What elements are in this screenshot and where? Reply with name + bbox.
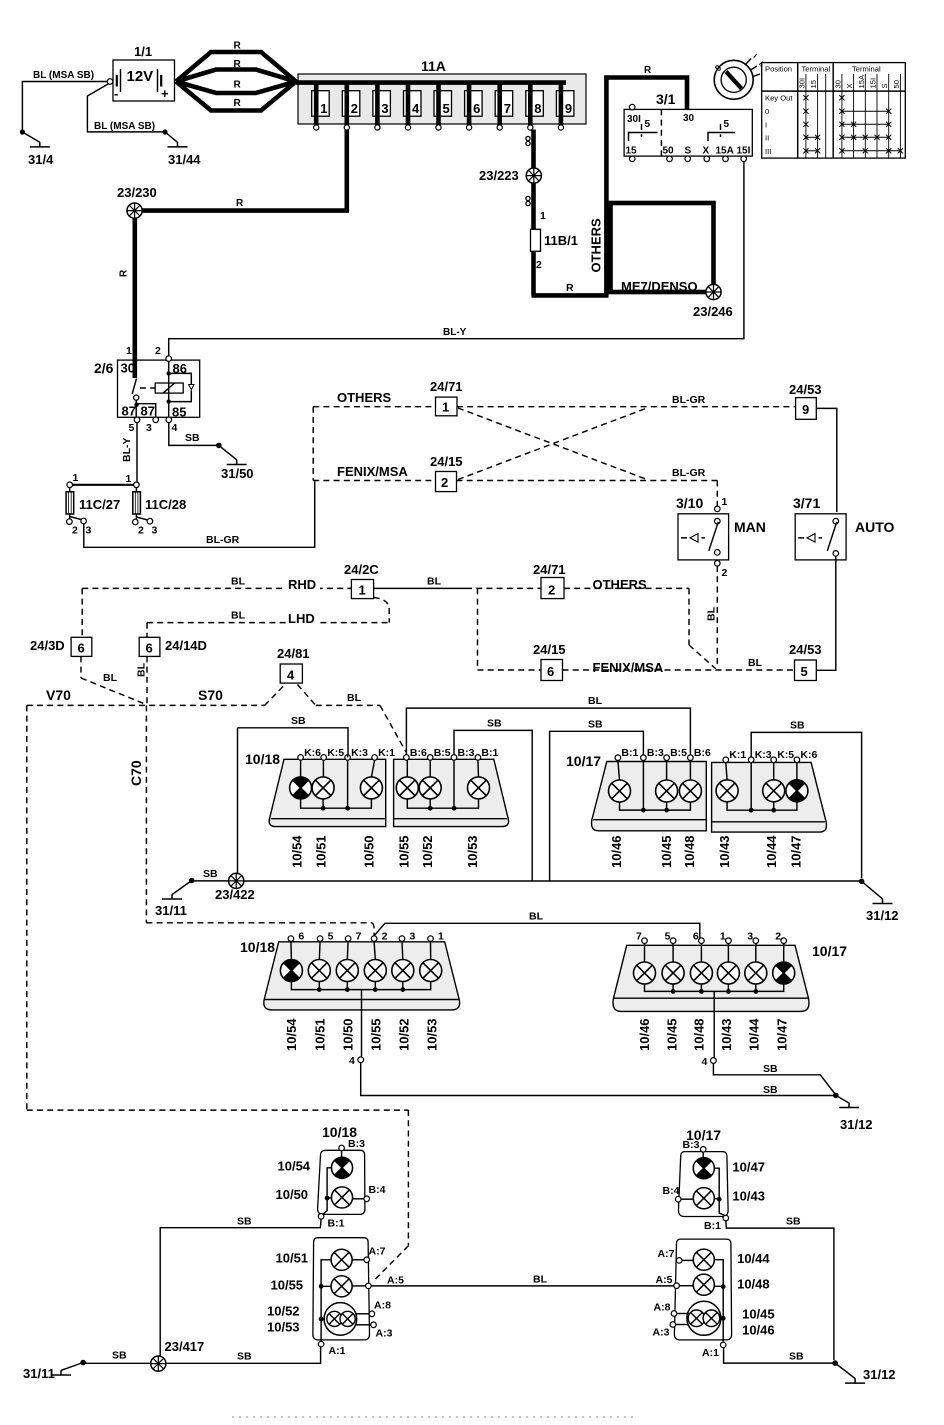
svg-text:10/48: 10/48 bbox=[682, 835, 697, 868]
svg-text:30I: 30I bbox=[627, 114, 641, 125]
svg-text:1: 1 bbox=[320, 101, 327, 116]
svg-text:10/51: 10/51 bbox=[313, 835, 328, 868]
svg-text:ME7/DENSO: ME7/DENSO bbox=[621, 279, 698, 294]
svg-text:24/15: 24/15 bbox=[430, 454, 463, 469]
svg-text:10/47: 10/47 bbox=[775, 1018, 790, 1051]
svg-text:S: S bbox=[685, 146, 692, 157]
svg-text:III: III bbox=[765, 147, 771, 156]
svg-text:10/46: 10/46 bbox=[637, 1018, 652, 1051]
svg-text:C70: C70 bbox=[128, 760, 144, 786]
svg-text:10/48: 10/48 bbox=[737, 1277, 770, 1292]
svg-text:10/45: 10/45 bbox=[665, 1018, 680, 1051]
svg-text:6: 6 bbox=[473, 101, 480, 116]
svg-text:23/417: 23/417 bbox=[165, 1339, 205, 1354]
svg-text:1: 1 bbox=[720, 931, 726, 943]
svg-text:10/44: 10/44 bbox=[747, 1018, 762, 1051]
svg-text:SB: SB bbox=[237, 1216, 252, 1228]
svg-text:MAN: MAN bbox=[734, 519, 766, 535]
svg-text:6: 6 bbox=[547, 664, 554, 679]
svg-text:10/50: 10/50 bbox=[362, 835, 377, 868]
svg-text:SB: SB bbox=[763, 1084, 778, 1096]
svg-text:SB: SB bbox=[291, 715, 306, 727]
svg-text:10/18: 10/18 bbox=[240, 939, 275, 955]
svg-text:SB: SB bbox=[789, 1351, 804, 1363]
svg-text:R: R bbox=[644, 65, 652, 76]
svg-text:K:6: K:6 bbox=[304, 747, 321, 759]
svg-text:7: 7 bbox=[504, 101, 511, 116]
svg-text:6: 6 bbox=[298, 931, 304, 943]
svg-text:4: 4 bbox=[172, 422, 178, 434]
svg-text:11B/1: 11B/1 bbox=[544, 233, 578, 248]
svg-text:10/43: 10/43 bbox=[719, 1018, 734, 1051]
svg-text:15: 15 bbox=[809, 80, 818, 88]
svg-text:A:1: A:1 bbox=[702, 1347, 719, 1359]
svg-text:5: 5 bbox=[801, 664, 808, 679]
svg-text:15I: 15I bbox=[737, 146, 751, 157]
svg-text:A:7: A:7 bbox=[369, 1246, 386, 1258]
svg-text:11C/28: 11C/28 bbox=[145, 497, 186, 512]
svg-text:1: 1 bbox=[540, 210, 546, 222]
svg-text:10/47: 10/47 bbox=[789, 835, 804, 868]
svg-text:BL: BL bbox=[231, 610, 246, 622]
svg-text:10/17: 10/17 bbox=[812, 943, 847, 959]
svg-text:31/11: 31/11 bbox=[23, 1366, 55, 1381]
svg-text:2: 2 bbox=[351, 101, 358, 116]
svg-text:9: 9 bbox=[802, 402, 809, 417]
svg-text:R: R bbox=[234, 80, 242, 91]
svg-text:R: R bbox=[234, 98, 242, 109]
svg-text:X: X bbox=[703, 146, 710, 157]
svg-text:OTHERS: OTHERS bbox=[337, 390, 392, 405]
svg-text:1: 1 bbox=[126, 345, 132, 357]
svg-text:+: + bbox=[161, 86, 169, 101]
svg-text:4: 4 bbox=[412, 101, 420, 116]
svg-text:2: 2 bbox=[382, 931, 388, 943]
svg-text:2: 2 bbox=[138, 525, 144, 537]
svg-text:10/53: 10/53 bbox=[267, 1320, 300, 1335]
svg-text:4: 4 bbox=[349, 1055, 355, 1067]
svg-text:9: 9 bbox=[565, 101, 572, 116]
svg-text:10/55: 10/55 bbox=[271, 1278, 304, 1293]
svg-text:2: 2 bbox=[155, 345, 161, 357]
svg-text:B:3: B:3 bbox=[683, 1139, 700, 1151]
svg-text:K:1: K:1 bbox=[729, 749, 746, 761]
svg-text:5: 5 bbox=[129, 422, 135, 434]
svg-text:Key Out: Key Out bbox=[765, 94, 793, 103]
svg-text:5: 5 bbox=[665, 931, 671, 943]
svg-text:FENIX/MSA: FENIX/MSA bbox=[593, 660, 664, 675]
svg-text:85: 85 bbox=[172, 405, 186, 420]
svg-text:BL-GR: BL-GR bbox=[206, 534, 240, 546]
svg-text:24/2C: 24/2C bbox=[344, 562, 379, 577]
svg-text:AUTO: AUTO bbox=[855, 519, 895, 535]
svg-text:10/43: 10/43 bbox=[717, 835, 732, 868]
svg-text:2: 2 bbox=[775, 931, 781, 943]
svg-text:SB: SB bbox=[487, 718, 502, 730]
svg-text:B:3: B:3 bbox=[348, 1138, 365, 1150]
svg-text:87: 87 bbox=[122, 404, 136, 419]
svg-text:10/54: 10/54 bbox=[278, 1159, 311, 1174]
svg-text:K:3: K:3 bbox=[755, 749, 772, 761]
svg-text:10/47: 10/47 bbox=[732, 1160, 765, 1175]
svg-text:3: 3 bbox=[410, 931, 416, 943]
svg-text:2: 2 bbox=[72, 525, 78, 537]
svg-text:50: 50 bbox=[663, 146, 675, 157]
svg-text:10/52: 10/52 bbox=[420, 835, 435, 868]
svg-text:8: 8 bbox=[534, 101, 541, 116]
svg-text:7: 7 bbox=[636, 931, 642, 943]
svg-text:BL: BL bbox=[533, 1274, 548, 1286]
svg-text:31/11: 31/11 bbox=[155, 903, 187, 918]
svg-text:BL: BL bbox=[347, 692, 362, 704]
svg-text:BL-Y: BL-Y bbox=[443, 327, 467, 338]
svg-text:BL (MSA SB): BL (MSA SB) bbox=[94, 121, 155, 132]
svg-text:BL: BL bbox=[748, 657, 763, 669]
svg-text:23/223: 23/223 bbox=[479, 168, 519, 183]
svg-text:10/43: 10/43 bbox=[732, 1189, 765, 1204]
svg-text:3/71: 3/71 bbox=[793, 495, 820, 511]
svg-text:K:6: K:6 bbox=[800, 749, 817, 761]
svg-text:-: - bbox=[114, 86, 118, 101]
svg-text:10/55: 10/55 bbox=[397, 835, 412, 868]
svg-text:Terminal: Terminal bbox=[852, 65, 881, 74]
svg-text:3: 3 bbox=[146, 422, 152, 434]
svg-text:3: 3 bbox=[381, 101, 388, 116]
svg-text:1: 1 bbox=[722, 496, 728, 508]
svg-text:4: 4 bbox=[702, 1056, 708, 1068]
svg-text:1: 1 bbox=[359, 583, 366, 598]
svg-text:10/45: 10/45 bbox=[742, 1307, 775, 1322]
svg-text:6: 6 bbox=[693, 931, 699, 943]
svg-text:15A: 15A bbox=[716, 146, 734, 157]
svg-text:B:6: B:6 bbox=[410, 747, 427, 759]
svg-text:B:3: B:3 bbox=[458, 747, 475, 759]
svg-text:0: 0 bbox=[765, 107, 769, 116]
svg-text:BL: BL bbox=[427, 576, 442, 588]
svg-text:3/10: 3/10 bbox=[676, 495, 703, 511]
svg-text:Terminal: Terminal bbox=[802, 65, 831, 74]
svg-text:10/55: 10/55 bbox=[369, 1018, 384, 1051]
svg-text:A:3: A:3 bbox=[653, 1327, 670, 1339]
svg-text:10/50: 10/50 bbox=[341, 1018, 356, 1051]
svg-text:10/51: 10/51 bbox=[313, 1018, 328, 1051]
svg-text:30I: 30I bbox=[797, 78, 806, 89]
svg-text:B:3: B:3 bbox=[647, 747, 664, 759]
svg-text:15: 15 bbox=[626, 146, 638, 157]
svg-text:1: 1 bbox=[442, 400, 449, 415]
svg-text:31/50: 31/50 bbox=[221, 466, 254, 481]
svg-text:31/4: 31/4 bbox=[28, 152, 54, 167]
svg-text:10/53: 10/53 bbox=[465, 835, 480, 868]
svg-text:24/81: 24/81 bbox=[277, 646, 310, 661]
svg-text:6: 6 bbox=[146, 641, 153, 656]
svg-text:10/44: 10/44 bbox=[764, 835, 779, 868]
svg-text:10/18: 10/18 bbox=[245, 751, 280, 767]
svg-text:1/1: 1/1 bbox=[134, 44, 152, 59]
svg-text:B:1: B:1 bbox=[481, 747, 498, 759]
svg-text:BL (MSA SB): BL (MSA SB) bbox=[33, 70, 94, 81]
svg-text:B:4: B:4 bbox=[369, 1184, 386, 1196]
svg-text:2/6: 2/6 bbox=[94, 360, 114, 376]
svg-text:6: 6 bbox=[78, 641, 85, 656]
svg-text:10/51: 10/51 bbox=[276, 1251, 309, 1266]
svg-text:B:1: B:1 bbox=[328, 1218, 345, 1230]
svg-text:10/46: 10/46 bbox=[609, 835, 624, 868]
svg-text:87: 87 bbox=[141, 404, 155, 419]
svg-text:A:1: A:1 bbox=[329, 1345, 346, 1357]
svg-text:Position: Position bbox=[765, 65, 792, 74]
svg-text:R: R bbox=[234, 59, 242, 70]
svg-text:SB: SB bbox=[763, 1063, 778, 1075]
svg-text:5: 5 bbox=[645, 119, 651, 130]
svg-text:24/71: 24/71 bbox=[430, 379, 463, 394]
svg-text:I: I bbox=[765, 120, 767, 129]
svg-text:31/44: 31/44 bbox=[168, 152, 201, 167]
svg-text:2: 2 bbox=[441, 475, 448, 490]
svg-text:BL: BL bbox=[231, 576, 246, 588]
svg-text:12V: 12V bbox=[127, 68, 154, 85]
svg-text:A:8: A:8 bbox=[654, 1302, 671, 1314]
svg-text:S70: S70 bbox=[198, 687, 223, 703]
svg-text:SB: SB bbox=[588, 719, 603, 731]
svg-text:BL-GR: BL-GR bbox=[672, 394, 706, 406]
svg-text:30: 30 bbox=[833, 80, 842, 88]
svg-text:SB: SB bbox=[786, 1216, 801, 1228]
svg-text:SB: SB bbox=[237, 1351, 252, 1363]
svg-text:4: 4 bbox=[287, 668, 295, 683]
svg-text:10/17: 10/17 bbox=[566, 753, 601, 769]
svg-text:3: 3 bbox=[86, 525, 92, 537]
svg-text:24/53: 24/53 bbox=[789, 642, 822, 657]
svg-text:1: 1 bbox=[73, 472, 79, 484]
svg-text:3/1: 3/1 bbox=[656, 91, 676, 107]
svg-text:K:1: K:1 bbox=[378, 747, 395, 759]
svg-text:BL: BL bbox=[103, 672, 118, 684]
svg-text:K:5: K:5 bbox=[327, 747, 344, 759]
svg-text:RHD: RHD bbox=[288, 577, 316, 592]
svg-text:R: R bbox=[236, 198, 244, 209]
svg-text:B:1: B:1 bbox=[704, 1220, 721, 1232]
svg-text:15A: 15A bbox=[857, 74, 866, 88]
svg-text:BL: BL bbox=[588, 695, 603, 707]
svg-text:11C/27: 11C/27 bbox=[79, 497, 120, 512]
svg-text:24/15: 24/15 bbox=[533, 642, 566, 657]
svg-text:K:3: K:3 bbox=[351, 747, 368, 759]
svg-text:SB: SB bbox=[203, 868, 218, 880]
svg-text:23/230: 23/230 bbox=[117, 185, 157, 200]
svg-text:LHD: LHD bbox=[288, 611, 315, 626]
svg-text:A:5: A:5 bbox=[387, 1275, 404, 1287]
svg-text:3: 3 bbox=[747, 931, 753, 943]
svg-text:24/3D: 24/3D bbox=[30, 638, 65, 653]
svg-text:FENIX/MSA: FENIX/MSA bbox=[337, 464, 408, 479]
svg-text:SB: SB bbox=[112, 1350, 127, 1362]
svg-text:2: 2 bbox=[536, 259, 542, 271]
svg-text:SB: SB bbox=[790, 720, 805, 732]
svg-text:24/14D: 24/14D bbox=[165, 638, 207, 653]
svg-text:OTHERS: OTHERS bbox=[589, 218, 604, 273]
svg-text:50: 50 bbox=[892, 80, 901, 88]
svg-text:BL: BL bbox=[136, 662, 148, 677]
svg-text:24/53: 24/53 bbox=[789, 382, 822, 397]
svg-text:10/53: 10/53 bbox=[424, 1018, 439, 1051]
svg-text:23/246: 23/246 bbox=[693, 304, 733, 319]
svg-text:1: 1 bbox=[438, 931, 444, 943]
svg-text:S: S bbox=[880, 83, 889, 88]
svg-text:10/45: 10/45 bbox=[659, 835, 674, 868]
svg-text:II: II bbox=[765, 133, 769, 142]
svg-text:2: 2 bbox=[548, 583, 555, 598]
svg-text:5: 5 bbox=[724, 119, 730, 130]
svg-text:31/12: 31/12 bbox=[866, 908, 899, 923]
svg-text:R: R bbox=[234, 41, 242, 52]
svg-text:SB: SB bbox=[185, 432, 200, 444]
svg-text:1: 1 bbox=[126, 473, 132, 485]
svg-text:23/422: 23/422 bbox=[215, 887, 255, 902]
svg-text:10/52: 10/52 bbox=[396, 1018, 411, 1051]
svg-text:B:6: B:6 bbox=[694, 747, 711, 759]
svg-text:10/44: 10/44 bbox=[737, 1251, 770, 1266]
svg-text:A:3: A:3 bbox=[376, 1328, 393, 1340]
svg-text:BL-Y: BL-Y bbox=[121, 438, 133, 463]
svg-text:11A: 11A bbox=[421, 58, 446, 74]
svg-text:31/12: 31/12 bbox=[863, 1367, 896, 1382]
svg-text:BL-GR: BL-GR bbox=[672, 467, 706, 479]
svg-text:10/54: 10/54 bbox=[290, 835, 305, 868]
svg-text:7: 7 bbox=[356, 931, 362, 943]
svg-text:10/52: 10/52 bbox=[267, 1304, 300, 1319]
svg-text:B:4: B:4 bbox=[663, 1185, 680, 1197]
svg-text:B:5: B:5 bbox=[434, 747, 451, 759]
svg-text:10/48: 10/48 bbox=[692, 1018, 707, 1051]
svg-text:B:1: B:1 bbox=[621, 747, 638, 759]
svg-text:24/71: 24/71 bbox=[533, 562, 566, 577]
svg-text:R: R bbox=[119, 269, 130, 277]
svg-text:R: R bbox=[566, 282, 574, 294]
svg-text:X: X bbox=[845, 83, 854, 88]
svg-text:30: 30 bbox=[683, 113, 695, 124]
svg-text:BL: BL bbox=[706, 606, 718, 621]
svg-text:OTHERS: OTHERS bbox=[593, 577, 648, 592]
svg-text:A:8: A:8 bbox=[374, 1300, 391, 1312]
svg-text:A:7: A:7 bbox=[658, 1248, 675, 1260]
svg-text:15I: 15I bbox=[869, 78, 878, 89]
svg-text:B:5: B:5 bbox=[670, 747, 687, 759]
svg-text:10/54: 10/54 bbox=[284, 1018, 299, 1051]
svg-text:5: 5 bbox=[328, 931, 334, 943]
svg-text:3: 3 bbox=[152, 525, 158, 537]
svg-text:10/50: 10/50 bbox=[276, 1187, 309, 1202]
svg-text:A:5: A:5 bbox=[656, 1274, 673, 1286]
svg-text:2: 2 bbox=[722, 567, 728, 579]
svg-text:10/46: 10/46 bbox=[742, 1323, 775, 1338]
svg-text:BL: BL bbox=[529, 911, 544, 923]
svg-text:K:5: K:5 bbox=[777, 749, 794, 761]
svg-text:5: 5 bbox=[443, 101, 450, 116]
svg-text:V70: V70 bbox=[46, 687, 71, 703]
svg-text:31/12: 31/12 bbox=[840, 1117, 873, 1132]
